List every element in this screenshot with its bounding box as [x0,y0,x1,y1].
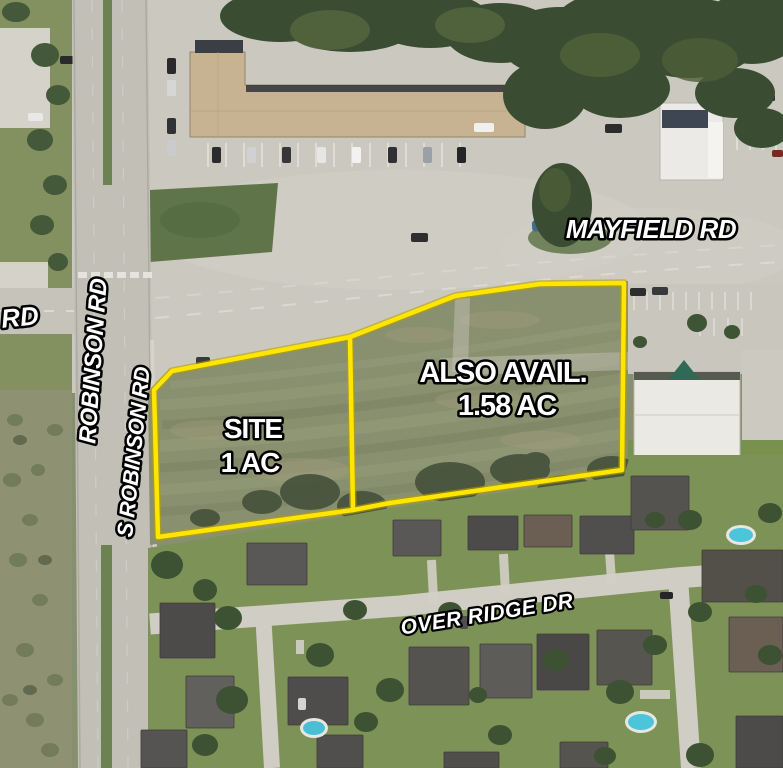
white-building [660,103,723,180]
aerial-site-map: MAYFIELD RD RD ROBINSON RD S ROBINSON RD… [0,0,783,768]
also-avail-name: ALSO AVAIL. [419,357,586,389]
mayfield-rd-label: MAYFIELD RD [566,214,737,244]
sidewalk-patch [0,28,50,128]
pool [729,528,753,542]
gabled-white-building [634,360,740,458]
aerial-basemap: MAYFIELD RD RD ROBINSON RD S ROBINSON RD… [0,0,783,768]
also-avail-area: 1.58 AC [458,390,557,422]
road-median [103,0,112,185]
site-name: SITE [224,413,283,444]
site-area: 1 AC [221,447,281,478]
parcel-divider [350,337,353,510]
west-rd-label: RD [0,300,40,334]
